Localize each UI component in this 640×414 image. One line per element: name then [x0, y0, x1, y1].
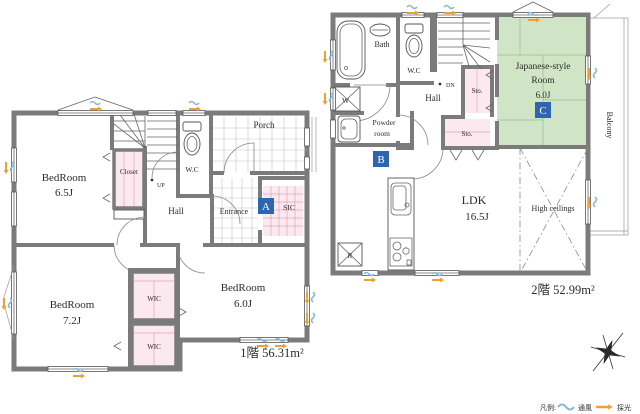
closet-label: Closet [120, 168, 138, 176]
japanese-room-name-2: Room [531, 76, 555, 86]
bedroom2-name: BedRoom [50, 299, 95, 311]
marker-b-label: B [377, 154, 384, 166]
japanese-room-name-1: Japanese-style [516, 62, 571, 72]
wind-legend-icon [558, 405, 574, 410]
sic-label: SIC [283, 203, 295, 212]
floorplan-page: UP Closet W.C A SIC WIC [0, 0, 640, 414]
light-legend-arrowhead [608, 405, 613, 410]
porch-label: Porch [254, 120, 275, 130]
bath-label: Bath [374, 40, 389, 49]
legend: 凡例: 通風 採光 [540, 403, 631, 412]
wc2-label: W.C [407, 66, 420, 75]
floorplan-canvas: UP Closet W.C A SIC WIC [0, 0, 640, 414]
legend-wind-label: 通風 [578, 403, 592, 412]
toilet-icon [183, 122, 201, 155]
stairs-up-label: UP [157, 183, 165, 189]
hall2-label: Hall [425, 93, 441, 103]
legend-title: 凡例: [540, 403, 556, 412]
legend-light-label: 採光 [617, 403, 631, 412]
sto-top-label: Sto. [471, 87, 482, 95]
entrance-label: Entrance [220, 207, 249, 216]
bedroom3-name: BedRoom [221, 282, 266, 294]
balcony-label: Balcony [605, 112, 614, 139]
ldk-size: 16.5J [465, 211, 489, 223]
powder-label-2: room [374, 129, 390, 138]
sto-mid-label: Sto. [461, 130, 472, 138]
washbasin-icon [338, 116, 360, 142]
balcony: Balcony [588, 4, 628, 235]
marker-a-label: A [262, 201, 270, 213]
bedroom2-size: 7.2J [63, 315, 82, 327]
stairs-down-label: DN [446, 83, 455, 89]
wic-top-label: WIC [147, 295, 161, 303]
wic-bottom-label: WIC [147, 343, 161, 351]
japanese-room-size: 6.0J [536, 90, 551, 100]
closet-room [114, 150, 144, 208]
fridge-label: R [348, 252, 353, 260]
floor1-plan: UP Closet W.C A SIC WIC [2, 97, 317, 379]
ldk-name: LDK [462, 193, 487, 207]
floor2-area-label: 2階 52.99m² [531, 282, 595, 297]
marker-c-label: C [539, 105, 546, 117]
floor2-plan: Balcony Bath [323, 2, 629, 297]
bedroom1-name: BedRoom [42, 172, 87, 184]
hall1-label: Hall [168, 206, 184, 216]
bedroom3-size: 6.0J [234, 298, 253, 310]
compass-icon [591, 333, 625, 371]
high-ceilings-label: High ceilings [532, 204, 575, 213]
powder-label-1: Powder [373, 118, 396, 127]
floor1-area-label: 1階 56.31m² [240, 345, 304, 360]
bedroom1-size: 6.5J [55, 187, 74, 199]
toilet2-icon [405, 24, 423, 57]
washer-label: W [342, 96, 350, 105]
wc1-label: W.C [185, 165, 198, 174]
kitchen-counter [388, 178, 414, 270]
